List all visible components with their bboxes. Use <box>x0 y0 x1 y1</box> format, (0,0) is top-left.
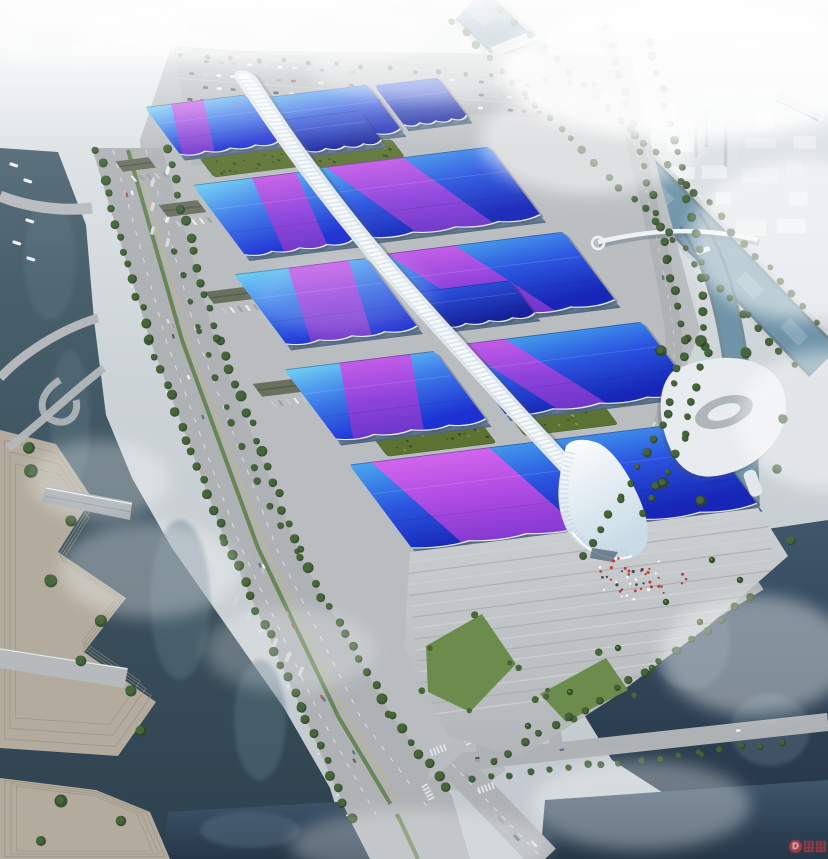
aerial-city-rendering: D <box>0 0 828 859</box>
person-dot <box>681 582 683 584</box>
person-dot <box>615 583 618 586</box>
person-dot <box>612 559 615 562</box>
person-dot <box>599 566 602 569</box>
person-dot <box>648 581 651 584</box>
person-dot <box>599 570 602 573</box>
person-dot <box>619 590 622 593</box>
person-dot <box>658 577 660 579</box>
person-dot <box>642 582 644 584</box>
person-dot <box>617 557 620 560</box>
person-dot <box>615 581 617 583</box>
person-dot <box>635 583 638 586</box>
watermark: D <box>789 840 826 853</box>
person-dot <box>621 588 623 590</box>
person-dot <box>626 576 628 578</box>
person-dot <box>601 576 604 579</box>
person-dot <box>634 589 637 592</box>
watermark-glyph-icon <box>804 841 814 852</box>
person-dot <box>640 588 642 590</box>
person-dot <box>663 592 665 594</box>
fog-wisp <box>205 608 375 692</box>
person-dot <box>658 560 660 562</box>
fog-wisp <box>530 760 750 850</box>
person-dot <box>644 573 646 575</box>
person-dot <box>610 579 612 581</box>
fog-wisp <box>60 522 240 618</box>
person-dot <box>632 570 635 573</box>
watermark-glyph-icon <box>816 841 826 852</box>
person-dot <box>640 570 642 572</box>
watermark-logo: D <box>789 840 802 853</box>
person-dot <box>655 572 657 574</box>
person-dot <box>626 594 628 596</box>
scene-svg <box>0 0 828 859</box>
person-dot <box>657 585 660 588</box>
person-dot <box>685 578 688 581</box>
person-dot <box>629 583 631 585</box>
person-dot <box>647 571 650 574</box>
person-dot <box>627 573 630 576</box>
person-dot <box>660 585 663 588</box>
person-dot <box>606 576 608 578</box>
person-dot <box>624 567 627 570</box>
person-dot <box>647 588 650 591</box>
person-dot <box>648 568 650 570</box>
person-dot <box>603 589 605 591</box>
person-dot <box>610 566 613 569</box>
person-dot <box>621 570 623 572</box>
person-dot <box>635 579 637 581</box>
person-dot <box>681 573 684 576</box>
fog-wisp <box>30 440 170 520</box>
person-dot <box>621 595 623 597</box>
person-dot <box>650 585 653 588</box>
person-dot <box>627 569 630 572</box>
person-dot <box>632 598 635 601</box>
